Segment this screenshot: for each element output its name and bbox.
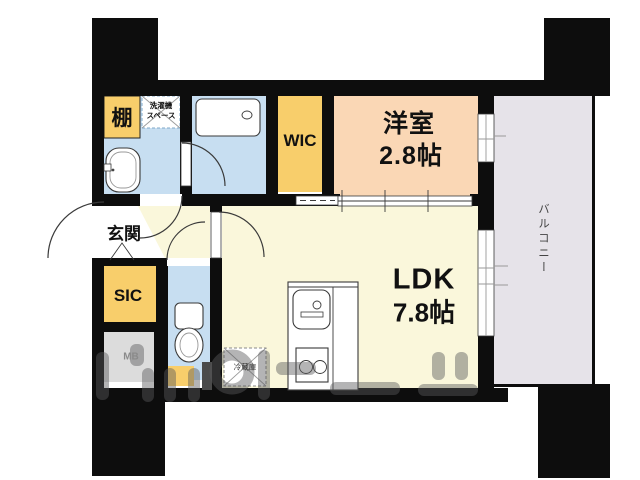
wall-wic-western (322, 96, 334, 196)
bath-door-leaf (181, 142, 191, 186)
shelf-label: 棚 (112, 102, 133, 132)
washroom-opening (140, 194, 182, 206)
laundry-label: 洗濯機 スペース (146, 101, 175, 121)
western-room-name: 洋室 (383, 104, 435, 140)
wall-left-upper (92, 96, 104, 206)
washbasin-faucet (104, 164, 111, 171)
pillar-top-right (544, 18, 610, 96)
entrance-opening (92, 206, 104, 258)
kitchen-sink (293, 290, 330, 329)
balcony-label: バルコニー (535, 203, 551, 276)
wall-sic-top (104, 258, 168, 266)
entrance-label: 玄関 (107, 220, 141, 245)
laundry-label-line1: 洗濯機 (146, 101, 175, 111)
toilet-opening (167, 258, 205, 266)
pillar-bottom-left (92, 400, 165, 476)
floor-plan: 棚 洗濯機 スペース WIC 洋室 2.8帖 バルコニー LDK 7.8帖 玄関… (0, 0, 640, 480)
wic-label: WIC (283, 131, 316, 151)
western-room-size: 2.8帖 (379, 136, 443, 172)
refrigerator-label: 冷蔵庫 (234, 362, 257, 373)
washbasin-drain-dot (112, 169, 115, 172)
pillar-top-left (92, 18, 158, 96)
wall-hall-top-a (92, 194, 140, 206)
balcony-rail-right (592, 96, 595, 386)
meter-box-label: MB (123, 352, 139, 363)
wall-top (92, 80, 610, 96)
laundry-label-line2: スペース (146, 111, 175, 121)
wall-sic-bottom (104, 322, 168, 332)
balcony-rail-bottom (494, 384, 592, 387)
bathtub (196, 99, 260, 136)
wall-ldk-junction (210, 194, 222, 212)
ldk-size: 7.8帖 (393, 293, 455, 330)
wall-bath-wic (266, 96, 278, 196)
ldk-door-leaf (211, 212, 221, 258)
kitchen-faucet-bar (301, 312, 323, 317)
sic-label: SIC (114, 286, 142, 306)
toilet-tank (175, 303, 203, 329)
pillar-bottom-right (538, 384, 610, 478)
